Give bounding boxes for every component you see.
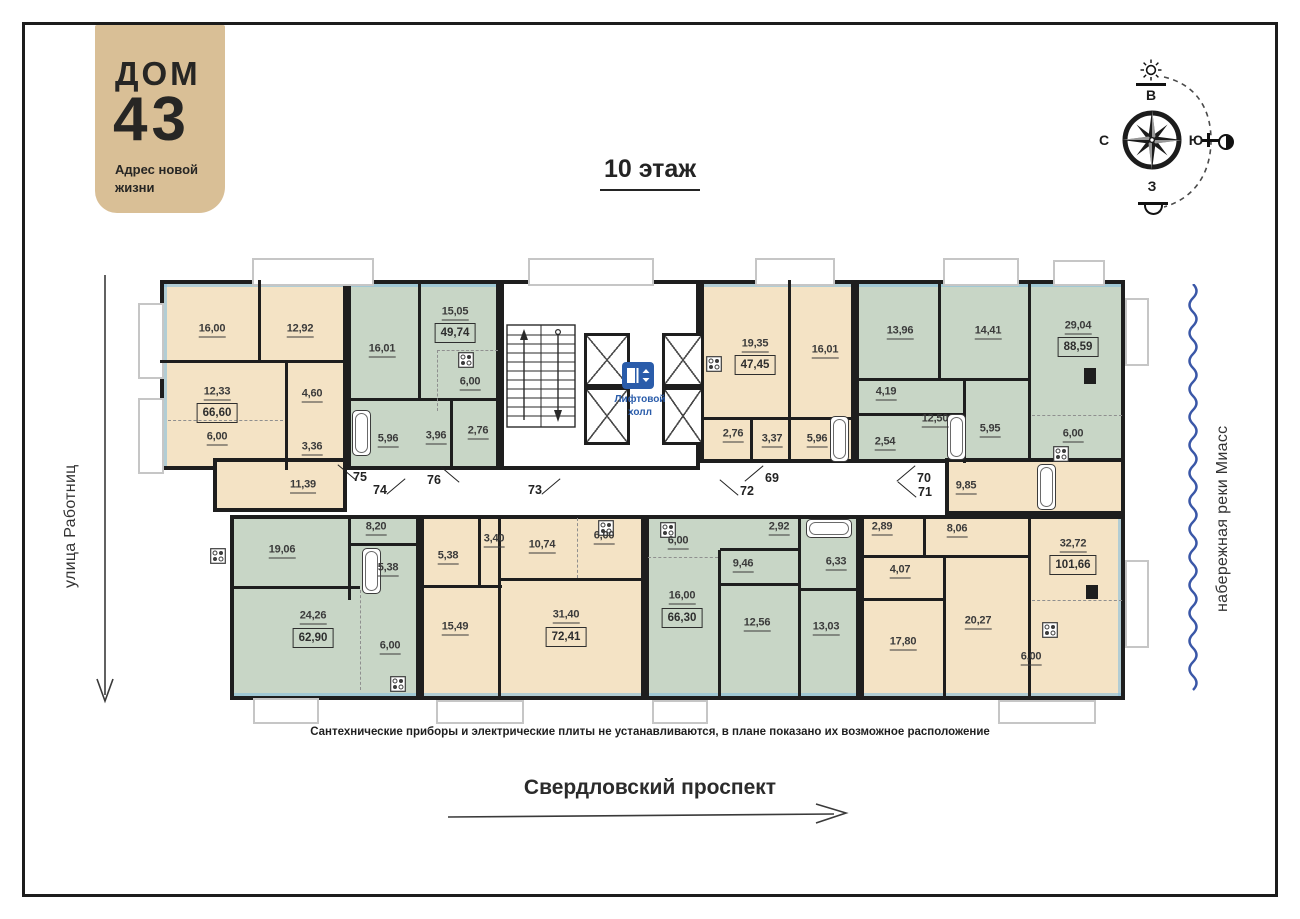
street-left-label: улица Работниц <box>62 398 80 588</box>
balcony <box>1125 560 1149 648</box>
room-area-label: 29,04 <box>1065 320 1092 335</box>
interior-wall <box>855 378 1031 381</box>
apartment-number: 73 <box>528 483 542 497</box>
interior-wall <box>943 557 946 700</box>
apartment-number: 72 <box>740 484 754 498</box>
interior-wall <box>788 419 791 463</box>
elevator-hall-label: Лифтовой холл <box>608 394 672 419</box>
compass-day-arc <box>1080 45 1265 230</box>
street-left-arrow <box>96 275 114 705</box>
room-area-label: 17,80 <box>890 636 917 651</box>
apartment-total-area: 66,30 <box>662 608 703 628</box>
interior-wall <box>798 515 801 700</box>
room-area-label: 2,54 <box>875 436 896 451</box>
room-area-label: 32,72 <box>1060 538 1087 553</box>
room-area-label: 6,00 <box>207 431 228 446</box>
interior-wall <box>1028 280 1031 460</box>
moon-connector-tick <box>1207 133 1210 147</box>
brand-tagline: Адрес новой жизни <box>115 161 207 196</box>
room-area-label: 12,56 <box>744 617 771 632</box>
room-area-label: 13,96 <box>887 325 914 340</box>
interior-wall <box>1028 515 1031 700</box>
room-area-label: 19,06 <box>269 544 296 559</box>
kitchen-zone-dashed-line <box>1032 600 1122 601</box>
balcony <box>528 258 654 286</box>
interior-wall <box>860 598 945 601</box>
stove-icon <box>210 548 226 564</box>
bay-window <box>138 398 164 474</box>
interior-wall <box>800 588 860 591</box>
room-area-label: 6,00 <box>1063 428 1084 443</box>
apartment-total-area: 66,60 <box>197 403 238 423</box>
column <box>1084 368 1096 384</box>
apartment-number: 75 <box>353 470 367 484</box>
room-area-label: 13,03 <box>813 621 840 636</box>
room-area-label: 12,33 <box>204 386 231 401</box>
interior-wall <box>938 280 941 380</box>
apartment-number: 70 <box>917 471 931 485</box>
plan-footnote: Сантехнические приборы и электрические п… <box>0 726 1300 738</box>
apartment-total-area: 47,45 <box>735 355 776 375</box>
brand-logo: ДОМ 43 Адрес новой жизни <box>95 25 225 213</box>
stove-icon <box>390 676 406 692</box>
room-area-label: 31,40 <box>553 609 580 624</box>
room-area-label: 12,50 <box>922 413 949 428</box>
stairs-icon <box>506 324 576 428</box>
room-area-label: 16,01 <box>369 343 396 358</box>
balcony <box>1053 260 1105 286</box>
apartment-number: 69 <box>765 471 779 485</box>
brand-number: 43 <box>113 89 225 151</box>
room-area-label: 16,00 <box>669 590 696 605</box>
room-area-label: 4,19 <box>876 386 897 401</box>
interior-wall <box>718 550 721 700</box>
balcony <box>998 700 1096 724</box>
interior-wall <box>230 586 360 589</box>
room-area-label: 20,27 <box>965 615 992 630</box>
compass: В Ю З С <box>1080 45 1265 230</box>
interior-wall <box>478 515 481 587</box>
street-bottom-arrow <box>448 800 852 828</box>
room-area-label: 11,39 <box>290 479 316 494</box>
room-area-label: 16,00 <box>199 323 226 338</box>
room-area-label: 9,85 <box>956 480 977 495</box>
room-area-label: 2,92 <box>769 521 790 536</box>
room-area-label: 2,76 <box>723 428 744 443</box>
room-area-label: 3,37 <box>762 433 783 448</box>
interior-wall <box>258 280 261 362</box>
kitchen-zone-dashed-line <box>360 590 361 690</box>
room-area-label: 14,41 <box>975 325 1002 340</box>
room-area-label: 19,35 <box>742 338 769 353</box>
balcony <box>755 258 835 286</box>
apartment-number: 76 <box>427 473 441 487</box>
balcony <box>436 700 524 724</box>
balcony <box>1125 298 1149 366</box>
embankment-right-label: набережная реки Миасс <box>1214 372 1232 612</box>
interior-wall <box>418 280 421 400</box>
bay-window <box>138 303 164 379</box>
room-area-label: 9,46 <box>733 558 754 573</box>
stove-icon <box>458 352 474 368</box>
stove-icon <box>1042 622 1058 638</box>
room-area-label: 8,20 <box>366 521 387 536</box>
interior-wall <box>348 543 420 546</box>
room-area-label: 3,96 <box>426 430 447 445</box>
room-area-label: 3,36 <box>302 441 323 456</box>
interior-wall <box>923 515 926 557</box>
balcony <box>253 698 319 724</box>
room-area-label: 5,96 <box>378 433 399 448</box>
room-area-label: 6,00 <box>594 530 615 545</box>
room-area-label: 15,05 <box>442 306 469 321</box>
kitchen-zone-dashed-line <box>577 518 578 578</box>
apartment-total-area: 62,90 <box>293 628 334 648</box>
apartment-75-hall <box>213 458 347 512</box>
column <box>1086 585 1098 599</box>
interior-wall <box>750 419 753 463</box>
elevator-icon <box>622 362 654 389</box>
room-area-label: 6,00 <box>668 535 689 550</box>
room-area-label: 15,49 <box>442 621 469 636</box>
room-area-label: 2,89 <box>872 521 893 536</box>
room-area-label: 5,38 <box>438 550 459 565</box>
room-area-label: 5,96 <box>807 433 828 448</box>
room-area-label: 10,74 <box>529 539 556 554</box>
apartment-total-area: 88,59 <box>1058 337 1099 357</box>
stove-icon <box>1053 446 1069 462</box>
room-area-label: 12,92 <box>287 323 314 338</box>
kitchen-zone-dashed-line <box>648 557 718 558</box>
room-area-label: 6,00 <box>380 640 401 655</box>
room-area-label: 24,26 <box>300 610 327 625</box>
stove-icon <box>706 356 722 372</box>
interior-wall <box>788 280 791 420</box>
interior-wall <box>720 583 800 586</box>
room-area-label: 6,33 <box>826 556 847 571</box>
balcony <box>652 700 708 724</box>
apartment-number: 74 <box>373 483 387 497</box>
apartment-total-area: 72,41 <box>546 627 587 647</box>
moon-icon <box>1218 134 1234 150</box>
room-area-label: 3,40 <box>484 533 505 548</box>
apartment-number: 71 <box>918 485 932 499</box>
interior-wall <box>285 362 288 470</box>
bathtub-icon <box>806 519 852 538</box>
room-area-label: 6,00 <box>1021 651 1042 666</box>
bathtub-icon <box>1037 464 1056 510</box>
apartment-total-area: 49,74 <box>435 323 476 343</box>
elevator-shaft <box>662 333 704 387</box>
room-area-label: 4,07 <box>890 564 911 579</box>
balcony <box>943 258 1019 286</box>
bathtub-icon <box>947 414 966 460</box>
room-area-label: 16,01 <box>812 344 839 359</box>
room-area-label: 5,38 <box>378 562 399 577</box>
interior-wall <box>720 548 800 551</box>
interior-wall <box>500 578 645 581</box>
apartment-total-area: 101,66 <box>1049 555 1096 575</box>
bathtub-icon <box>830 416 849 462</box>
room-area-label: 2,76 <box>468 425 489 440</box>
room-area-label: 6,00 <box>460 376 481 391</box>
interior-wall <box>160 360 347 363</box>
balcony <box>252 258 374 286</box>
floor-plan-page: ДОМ 43 Адрес новой жизни 10 этаж В Ю З С <box>0 0 1300 919</box>
room-area-label: 8,06 <box>947 523 968 538</box>
room-area-label: 4,60 <box>302 388 323 403</box>
room-area-label: 5,95 <box>980 423 1001 438</box>
river-wave-icon <box>1185 284 1201 692</box>
interior-wall <box>420 585 502 588</box>
street-bottom-label: Свердловский проспект <box>0 776 1300 800</box>
bathtub-icon <box>352 410 371 456</box>
kitchen-zone-dashed-line <box>1032 415 1122 416</box>
